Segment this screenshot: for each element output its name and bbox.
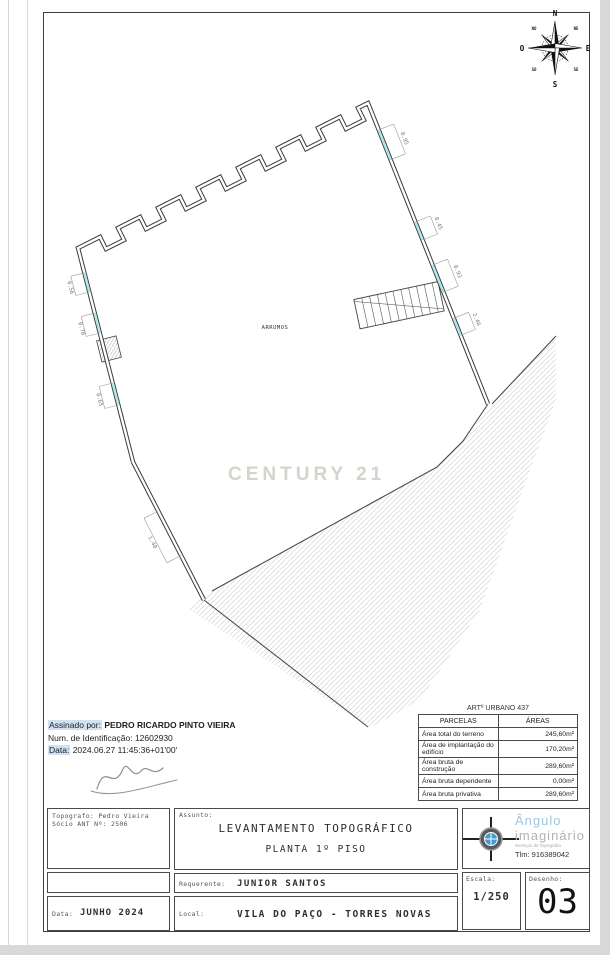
areas-table-block: ARTº URBANO 437 PARCELAS ÁREAS Área tota… [418, 705, 578, 801]
areas-table: PARCELAS ÁREAS Área total do terreno 245… [418, 714, 578, 801]
table-header-row: PARCELAS ÁREAS [419, 715, 578, 728]
signed-by-name: PEDRO RICARDO PINTO VIEIRA [104, 720, 235, 730]
table-row: Área total do terreno 245,60m² [419, 728, 578, 741]
location-value: VILA DO PAÇO - TORRES NOVAS [237, 909, 432, 920]
logo-name-line2: imaginário [515, 828, 589, 843]
drawing-number-value: 03 [526, 882, 589, 922]
dim-label: 1.40 [146, 535, 157, 550]
row-value: 245,60m² [498, 728, 578, 741]
logo-tagline: Serviços de Topografia [515, 843, 589, 848]
date-cell-label: Data: [52, 910, 73, 918]
compass-label-ne: NE [574, 26, 579, 31]
row-value: 289,60m² [498, 758, 578, 775]
scanned-survey-page: CENTURY 21 [0, 0, 610, 955]
id-value: 12602930 [135, 733, 173, 743]
client-value: JUNIOR SANTOS [237, 879, 327, 889]
row-value: 289,60m² [498, 788, 578, 801]
logo-cell: Ângulo imaginário Serviços de Topografia… [462, 808, 590, 869]
compass-label-north: N [553, 9, 558, 18]
compass-label-nw: NO [532, 26, 537, 31]
window-segments [84, 130, 460, 405]
scale-cell: Escala: 1/250 [462, 872, 521, 930]
dim-label: 0.56 [65, 281, 74, 295]
surveyor-line2: Sócio ANT Nº: 2506 [52, 820, 165, 828]
logo-name-line1: Ângulo [515, 813, 589, 828]
dim-label: 0.93 [452, 264, 463, 279]
subject-label: Assunto: [179, 811, 213, 819]
row-label: Área de implantação do edifício [419, 741, 499, 758]
logo-phone: Tlm: 916389042 [515, 850, 589, 859]
date-label: Data: [48, 745, 70, 755]
compass-rose: N S E O NE SE SO NO [520, 9, 591, 89]
compass-label-west: O [520, 44, 525, 53]
id-label: Num. de Identificação: [48, 733, 133, 743]
date-cell: Data: JUNHO 2024 [47, 896, 170, 931]
drawing-number-cell: Desenho: 03 [525, 872, 590, 930]
surveyor-cell: Topografo: Pedro Vieira Sócio ANT Nº: 25… [47, 808, 170, 869]
compass-label-south: S [553, 80, 558, 89]
dim-label: 2.46 [471, 312, 482, 327]
surveyor-line1: Topografo: Pedro Vieira [52, 812, 165, 820]
dim-label: 0.95 [399, 131, 410, 146]
dim-label: 0.45 [433, 216, 444, 231]
signed-by-label: Assinado por: [48, 720, 102, 730]
table-row: Área de implantação do edifício 170,20m² [419, 741, 578, 758]
dim-label: 0.70 [76, 322, 85, 336]
subject-subtitle: PLANTA 1º PISO [175, 844, 457, 855]
compass-label-se: SE [574, 67, 579, 72]
table-row: Área bruta de construção 289,60m² [419, 758, 578, 775]
subject-cell: Assunto: LEVANTAMENTO TOPOGRÁFICO PLANTA… [174, 808, 458, 870]
row-label: Área bruta privativa [419, 788, 499, 801]
scale-value: 1/250 [463, 891, 520, 903]
logo-text-block: Ângulo imaginário Serviços de Topografia… [515, 813, 589, 859]
col-header-areas: ÁREAS [498, 715, 578, 728]
signature-line-signed-by: Assinado por: PEDRO RICARDO PINTO VIEIRA [48, 719, 236, 732]
row-label: Área bruta dependente [419, 775, 499, 788]
table-row: Área bruta privativa 289,60m² [419, 788, 578, 801]
scale-label: Escala: [466, 875, 496, 883]
compass-label-sw: SO [532, 67, 537, 72]
date-cell-value: JUNHO 2024 [80, 908, 144, 918]
handwritten-signature [85, 753, 185, 795]
row-value: 170,20m² [498, 741, 578, 758]
surveyor-crosshair-icon [461, 811, 521, 867]
row-label: Área total do terreno [419, 728, 499, 741]
row-label: Área bruta de construção [419, 758, 499, 775]
row-value: 0,00m² [498, 775, 578, 788]
drawing-number-label: Desenho: [529, 875, 563, 883]
scan-edge-bottom [0, 945, 610, 955]
table-row: Área bruta dependente 0,00m² [419, 775, 578, 788]
room-label: ARRUMOS [262, 325, 289, 331]
areas-table-title: ARTº URBANO 437 [418, 705, 578, 712]
location-label: Local: [179, 910, 204, 918]
client-cell: Requerente: JUNIOR SANTOS [174, 873, 458, 893]
stairs [354, 282, 444, 329]
col-header-parcelas: PARCELAS [419, 715, 499, 728]
subject-title: LEVANTAMENTO TOPOGRÁFICO [175, 822, 457, 835]
digital-signature-stamp: Assinado por: PEDRO RICARDO PINTO VIEIRA… [48, 719, 236, 757]
empty-cell [47, 872, 170, 893]
compass-label-east: E [586, 44, 591, 53]
location-cell: Local: VILA DO PAÇO - TORRES NOVAS [174, 896, 458, 931]
floor-plan-drawing: 0.95 0.45 0.93 2.46 0.56 0.70 0.65 1.40 … [0, 0, 610, 810]
client-label: Requerente: [179, 880, 225, 888]
signature-line-id: Num. de Identificação: 12602930 [48, 732, 236, 745]
dim-label: 0.65 [94, 393, 103, 407]
